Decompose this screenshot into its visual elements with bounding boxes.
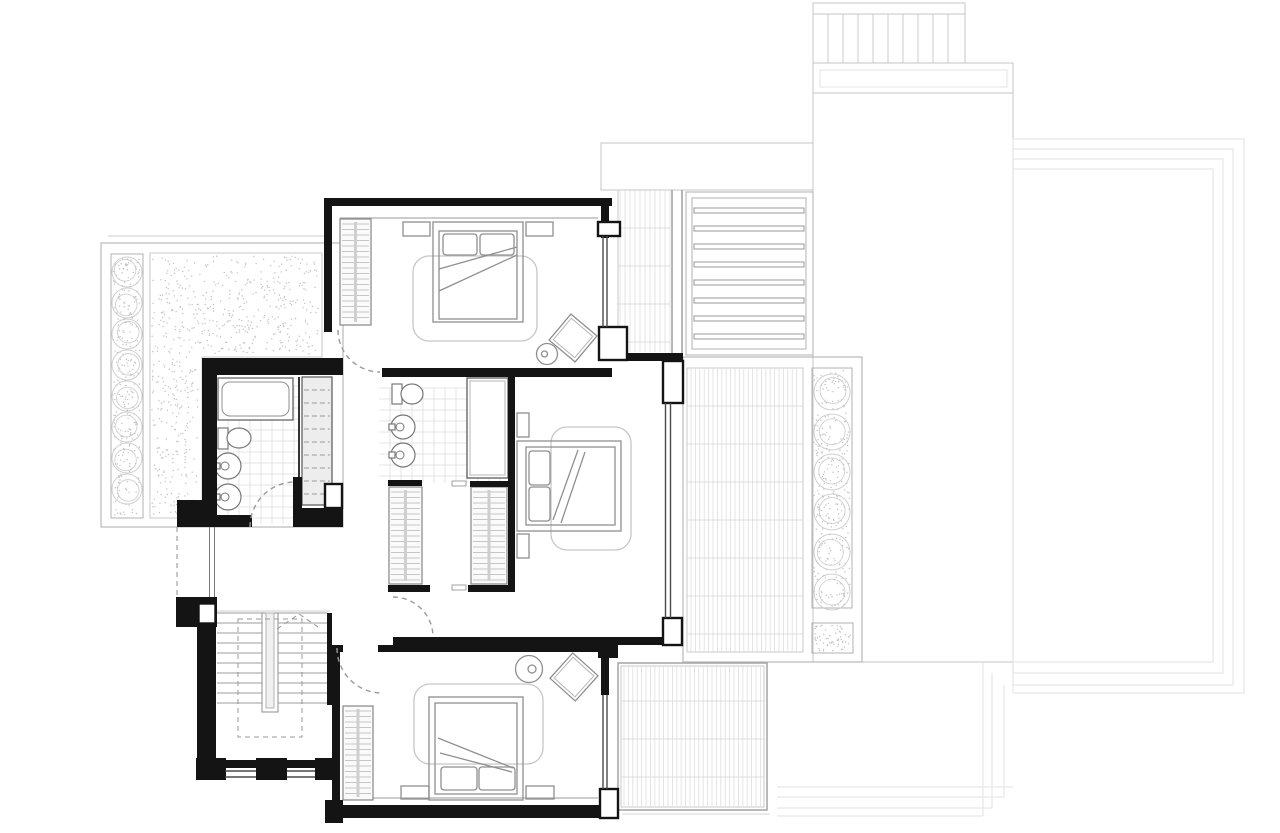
nightstand [526, 786, 554, 799]
toilet-bowl [227, 428, 251, 448]
pilaster [598, 222, 620, 236]
wall-segment [327, 613, 332, 705]
right-terrace-border [683, 357, 862, 662]
wall-segment [388, 585, 430, 592]
toilet-bowl [401, 384, 423, 404]
wall-segment [393, 637, 683, 645]
door-arc-bathroom [250, 482, 295, 527]
louver-screen [686, 192, 813, 355]
pergola-header [813, 3, 965, 14]
wall-segment [202, 358, 343, 375]
wall-segment [378, 645, 602, 652]
wall-segment [202, 515, 252, 527]
nightstand [517, 534, 529, 558]
wall-segment [332, 805, 618, 818]
wall-segment [388, 480, 422, 486]
wall-segment [508, 377, 515, 592]
wall-segment [177, 500, 202, 527]
pool-ring [1013, 169, 1213, 662]
wall-segment [325, 800, 343, 823]
nightstand [401, 786, 429, 799]
side-table [516, 656, 543, 683]
pool-ring [1013, 159, 1223, 673]
door-arc-bedroom-bottom [337, 648, 382, 693]
nightstand [526, 222, 553, 236]
bathtub [218, 378, 293, 420]
pool-and-deck-outlines [601, 3, 1244, 816]
wall-segment [197, 627, 216, 778]
wall-segment [324, 198, 332, 332]
wall-segment [470, 481, 508, 487]
nightstand [403, 222, 430, 236]
armchair-bedroom-bottom [550, 653, 598, 701]
wall-segment [256, 758, 287, 780]
pergola-frame [813, 14, 965, 63]
rug-bedroom-top [413, 256, 537, 341]
spa-bench [813, 63, 1013, 93]
wall-segment [601, 658, 609, 695]
wall-segment [315, 758, 332, 780]
wall-segment [332, 652, 340, 805]
bed-master [517, 441, 621, 531]
floor-plan-page [0, 0, 1280, 833]
pilaster [663, 618, 682, 645]
patio-tiles [618, 663, 767, 810]
wall-segment [468, 585, 508, 592]
floor-plan-drawing [0, 0, 1280, 833]
nightstand [517, 413, 529, 437]
bed-bedroom-top [433, 222, 523, 322]
pilaster [663, 361, 683, 403]
stair-direction-arrow [277, 614, 321, 629]
wall-segment [293, 508, 343, 527]
armchair-bedroom-top [549, 314, 597, 362]
pilaster [600, 789, 618, 818]
vanity-cabinet [467, 378, 508, 478]
bed-bedroom-bottom [429, 697, 523, 800]
wall-segment [196, 758, 226, 780]
pilaster [599, 327, 627, 360]
wall-segment [324, 198, 612, 206]
rug-bedroom-bottom [414, 684, 543, 764]
pool-ring [1013, 149, 1233, 685]
deck-strip [601, 143, 813, 190]
pilaster [325, 484, 342, 508]
wall-segment [382, 368, 612, 377]
pilaster [199, 604, 215, 623]
door-arc-bedroom-top [338, 330, 380, 372]
wall-segment [202, 358, 217, 527]
furniture [302, 218, 621, 800]
pool-ring [1013, 139, 1244, 693]
wall-segment [598, 645, 618, 658]
door-arc-master [393, 597, 433, 637]
